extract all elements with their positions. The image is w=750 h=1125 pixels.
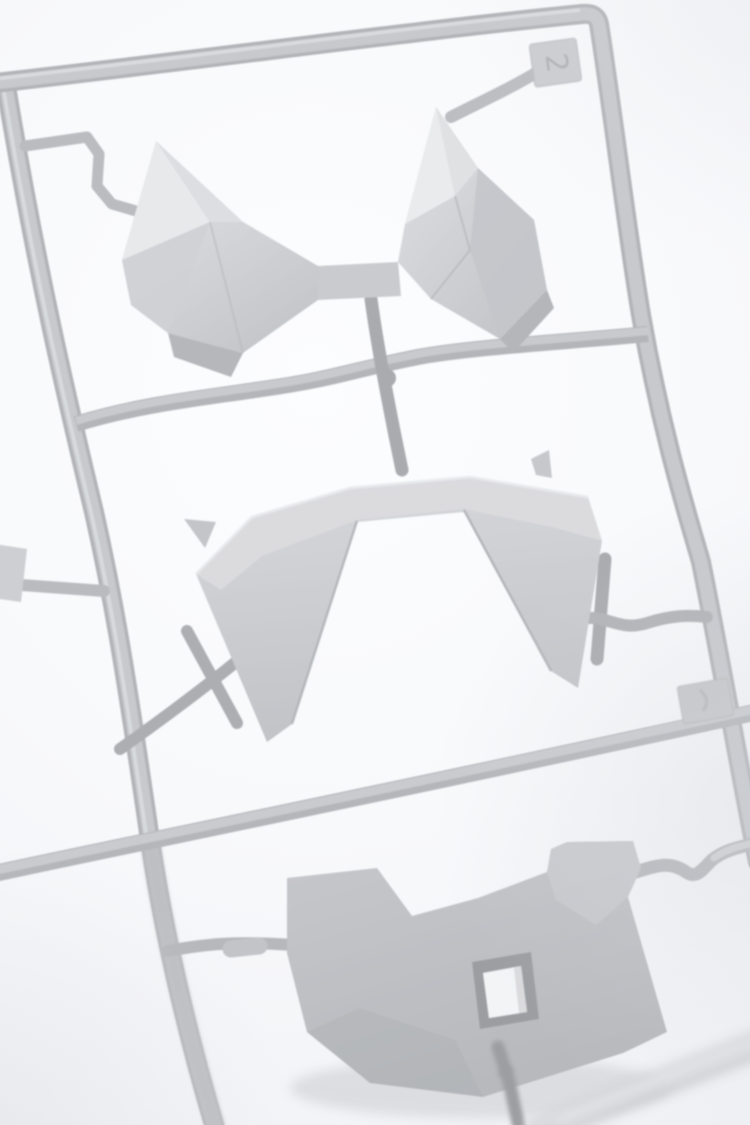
sprue-illustration: 2 (0, 0, 750, 1125)
wavy-runner (76, 334, 648, 424)
chest-plate-part (287, 841, 670, 1118)
sprue-photo: 2 (0, 0, 750, 1125)
frame-left-rail-blurred-end (150, 840, 216, 1125)
plate-left-gate-runner (168, 943, 292, 951)
visor-skirt-part (184, 450, 602, 742)
crest-bridge (318, 262, 401, 300)
gate-number-tab: 2 (529, 38, 582, 87)
side-tab (677, 678, 734, 724)
plate-right-gate-runner (636, 843, 750, 875)
visor-left-spike (184, 519, 216, 548)
sprue-frame: 2 (0, 10, 750, 1125)
center-gate-stem (371, 299, 402, 470)
crest-right-gate-runner (451, 67, 546, 117)
left-edge-tab (0, 542, 27, 602)
cross-runner-face (0, 709, 750, 871)
visor-right-spike (531, 450, 552, 478)
crest-left-gate-runner (25, 137, 143, 213)
crest-armor-part (122, 107, 554, 377)
